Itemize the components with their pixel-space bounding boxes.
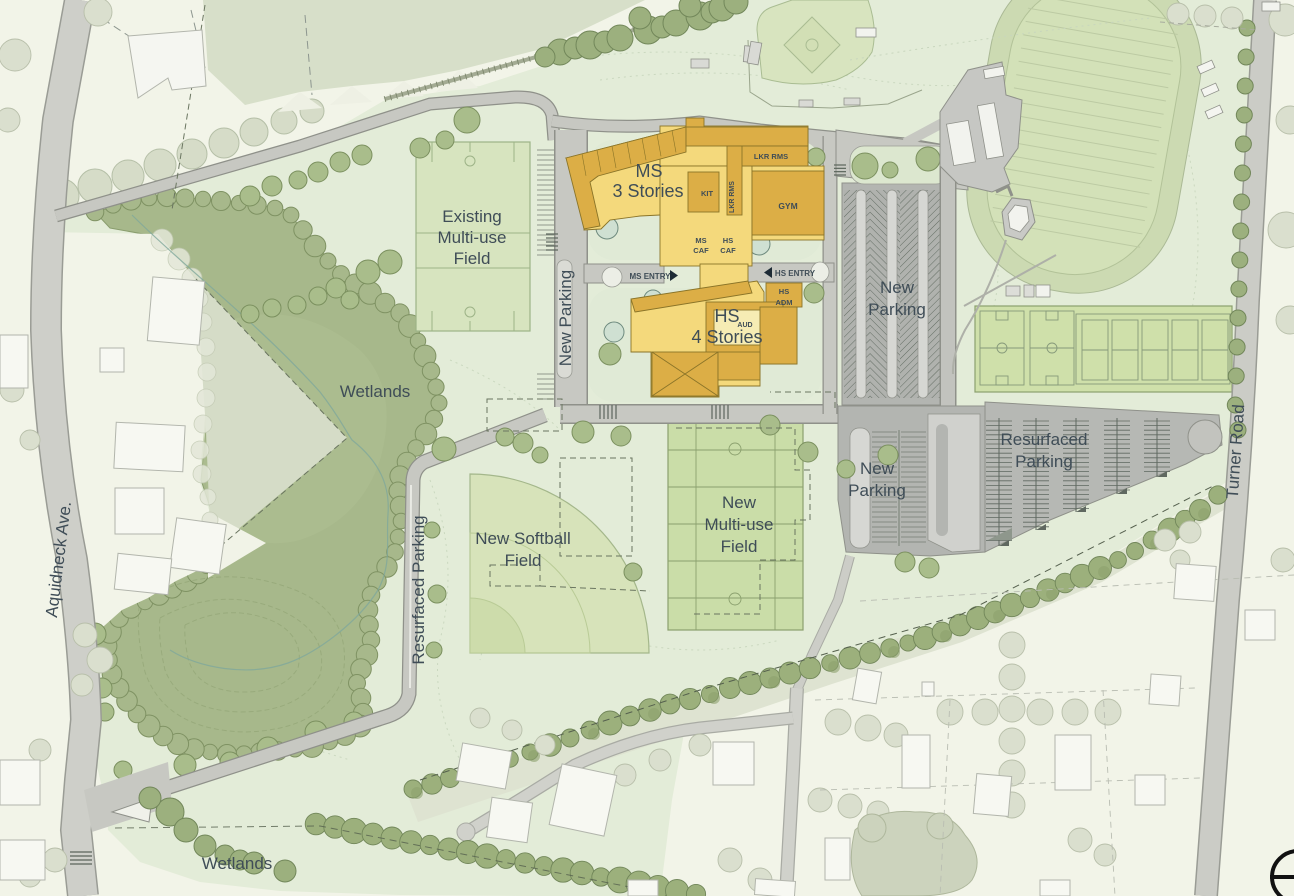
svg-text:KIT: KIT xyxy=(701,189,714,198)
svg-text:Field: Field xyxy=(505,551,542,570)
svg-text:ADM: ADM xyxy=(775,298,792,307)
svg-text:LKR RMS: LKR RMS xyxy=(754,152,788,161)
svg-text:Multi-use: Multi-use xyxy=(705,515,774,534)
svg-text:New: New xyxy=(722,493,757,512)
svg-text:MS: MS xyxy=(695,236,706,245)
svg-text:Wetlands: Wetlands xyxy=(340,382,411,401)
svg-text:Resurfaced: Resurfaced xyxy=(1001,430,1088,449)
svg-text:GYM: GYM xyxy=(778,201,797,211)
svg-text:Parking: Parking xyxy=(1015,452,1073,471)
svg-text:LKR RMS: LKR RMS xyxy=(729,181,736,213)
svg-text:HS: HS xyxy=(779,287,789,296)
svg-text:Parking: Parking xyxy=(848,481,906,500)
svg-text:4 Stories: 4 Stories xyxy=(691,327,762,347)
svg-text:3 Stories: 3 Stories xyxy=(612,181,683,201)
svg-text:HS: HS xyxy=(714,306,739,326)
svg-text:HS: HS xyxy=(723,236,733,245)
svg-text:MS ENTRY: MS ENTRY xyxy=(629,272,671,281)
svg-text:MS: MS xyxy=(636,161,663,181)
svg-text:New Softball: New Softball xyxy=(475,529,570,548)
svg-text:Parking: Parking xyxy=(868,300,926,319)
svg-text:Field: Field xyxy=(454,249,491,268)
svg-text:New: New xyxy=(880,278,915,297)
svg-text:Multi-use: Multi-use xyxy=(438,228,507,247)
svg-text:Existing: Existing xyxy=(442,207,502,226)
svg-text:New: New xyxy=(860,459,895,478)
svg-text:Wetlands: Wetlands xyxy=(202,854,273,873)
svg-text:Resurfaced Parking: Resurfaced Parking xyxy=(409,515,428,664)
svg-text:CAF: CAF xyxy=(720,246,736,255)
svg-text:New Parking: New Parking xyxy=(556,270,575,366)
svg-text:HS ENTRY: HS ENTRY xyxy=(775,269,816,278)
svg-text:CAF: CAF xyxy=(693,246,709,255)
svg-text:Field: Field xyxy=(721,537,758,556)
svg-text:AUD: AUD xyxy=(737,322,752,329)
